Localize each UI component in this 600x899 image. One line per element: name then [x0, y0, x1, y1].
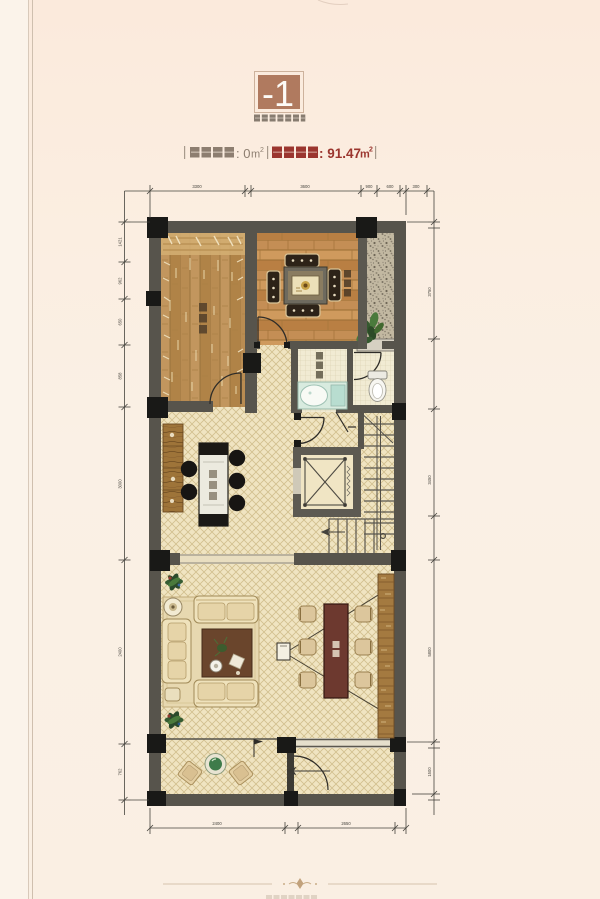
- svg-text:3000: 3000: [118, 479, 123, 489]
- svg-text:: 0: : 0: [236, 146, 250, 161]
- svg-text:1421: 1421: [118, 237, 123, 247]
- svg-text:2400: 2400: [118, 647, 123, 657]
- svg-text:900: 900: [366, 184, 374, 189]
- svg-text:1500: 1500: [427, 767, 432, 777]
- svg-text:600: 600: [387, 184, 395, 189]
- svg-text:3750: 3750: [427, 287, 432, 297]
- svg-text:2650: 2650: [341, 821, 351, 826]
- svg-text:-1: -1: [262, 73, 294, 114]
- svg-text:2: 2: [369, 147, 373, 154]
- svg-text:3600: 3600: [300, 184, 310, 189]
- svg-text:762: 762: [118, 768, 123, 776]
- svg-text:5800: 5800: [427, 647, 432, 657]
- svg-text:3450: 3450: [427, 475, 432, 485]
- svg-text:300: 300: [413, 184, 421, 189]
- svg-text:3300: 3300: [192, 184, 202, 189]
- svg-text:m: m: [251, 149, 260, 161]
- svg-text:650: 650: [118, 318, 123, 326]
- svg-text:2400: 2400: [212, 821, 222, 826]
- svg-text:858: 858: [118, 372, 123, 380]
- svg-text:2: 2: [260, 147, 264, 154]
- svg-text:962: 962: [118, 277, 123, 285]
- svg-text:: 91.47: : 91.47: [319, 146, 361, 161]
